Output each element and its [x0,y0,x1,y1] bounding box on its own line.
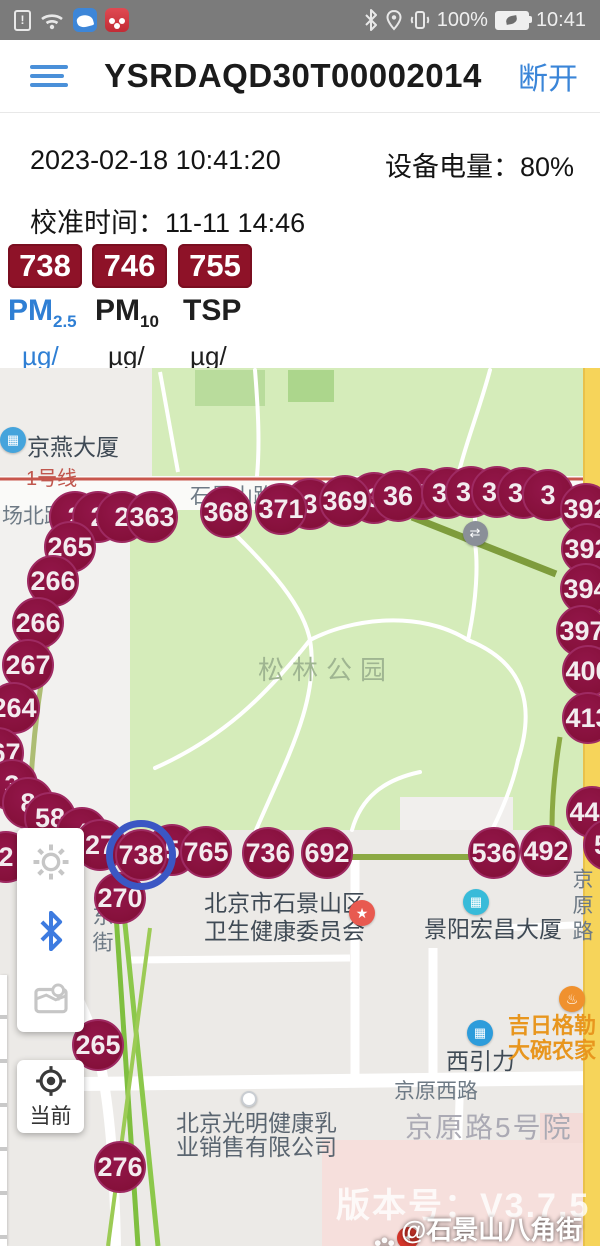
map-marker[interactable]: 36 [372,470,424,522]
building-poi-icon: ▦ [467,1020,493,1046]
media-app-icon [105,8,129,32]
pm10-label[interactable]: PM10 [95,294,159,332]
app-screen: 100% 10:41 YSRDAQD30T00002014 断开 2023-02… [0,0,600,1246]
map-marker[interactable]: 363 [126,491,178,543]
brand-watermark-text: @石景山八角街道 [401,1210,600,1246]
device-battery: 设备电量：80% [385,145,574,184]
locate-crosshair-icon [34,1064,68,1098]
map-marker[interactable]: 371 [255,483,307,535]
messenger-app-icon [73,8,97,32]
battery-percent: 100% [437,9,488,32]
menu-button[interactable] [30,60,68,92]
locate-label: 当前 [30,1100,72,1130]
tsp-unit: µg/ m³ [190,340,227,368]
map-marker-selected[interactable]: 738 [115,829,167,881]
disconnect-button[interactable]: 断开 [518,54,578,98]
map-marker[interactable]: 692 [301,827,353,879]
subway-poi-icon: ⇄ [463,521,488,546]
map-marker[interactable]: 492 [520,825,572,877]
building-poi-icon: ▦ [463,889,489,915]
brand-watermark: @石景山八角街道 [372,1210,600,1246]
sim-alert-icon [14,10,31,31]
map-marker[interactable]: 536 [468,827,520,879]
paw-icon [372,1235,397,1246]
pm10-value-badge[interactable]: 746 [92,244,167,288]
status-right-icons: 100% 10:41 [364,9,586,32]
clock: 10:41 [536,9,586,32]
pm10-unit: µg/ m³ [108,340,145,368]
tsp-value-badge[interactable]: 755 [178,244,252,288]
map-marker[interactable]: 368 [200,486,252,538]
food-poi-icon: ♨ [559,986,585,1012]
timestamp: 2023-02-18 10:41:20 [30,145,281,176]
dot-poi-icon [241,1091,257,1107]
status-bar: 100% 10:41 [0,0,600,40]
wifi-icon [39,10,65,30]
star-poi-icon: ★ [349,900,375,926]
map-marker[interactable]: 276 [94,1141,146,1193]
map-marker[interactable]: 736 [242,827,294,879]
building-poi-icon: ▦ [0,427,26,453]
tsp-label[interactable]: TSP [183,294,241,328]
location-icon [385,9,403,31]
vibrate-icon [410,9,430,31]
bluetooth-icon [364,9,378,31]
map-marker[interactable]: 765 [180,826,232,878]
map-marker[interactable]: 369 [319,475,371,527]
app-header: YSRDAQD30T00002014 断开 [0,40,600,113]
pm25-label[interactable]: PM2.5 [8,294,77,332]
locate-panel[interactable]: 当前 [17,1060,84,1133]
status-left-icons [14,8,129,32]
calibration-time: 校准时间：11-11 14:46 [30,201,305,240]
map-control-panel [17,828,84,1032]
battery-icon [495,11,529,30]
pm25-value-badge[interactable]: 738 [8,244,82,288]
bluetooth-connect-icon[interactable] [34,911,68,951]
map-canvas[interactable]: 1号线石景山路场北路京燕大厦松林公园东街北京市石景山区卫生健康委员会景阳宏昌大厦… [0,368,600,1246]
edge-panel-strip [0,975,7,1246]
pm25-unit: µg/ m³ [22,340,59,368]
map-layers-icon[interactable] [32,980,70,1018]
pollutant-readings: 738 746 755 PM2.5 PM10 TSP µg/ m³ µg/ m³… [0,240,600,368]
settings-gear-icon[interactable] [31,842,71,882]
device-title: YSRDAQD30T00002014 [68,57,518,95]
